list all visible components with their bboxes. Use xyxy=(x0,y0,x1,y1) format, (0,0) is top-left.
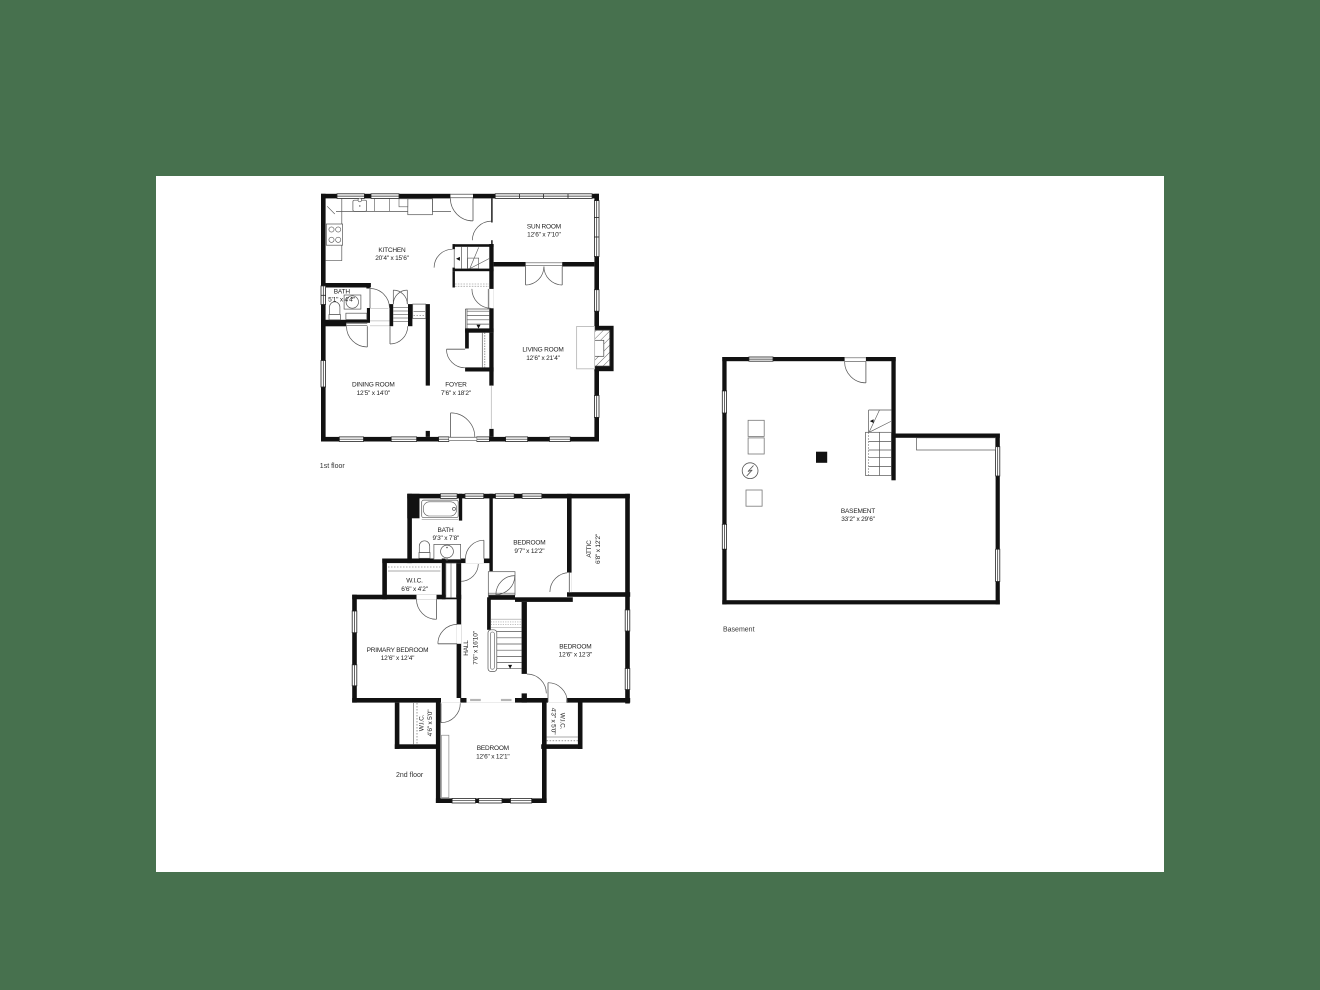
svg-text:12’6" x 12’4": 12’6" x 12’4" xyxy=(381,655,415,662)
svg-text:BEDROOM: BEDROOM xyxy=(513,540,545,547)
svg-text:6’8" x 12’2": 6’8" x 12’2" xyxy=(595,533,602,564)
svg-text:PRIMARY BEDROOM: PRIMARY BEDROOM xyxy=(367,647,429,654)
svg-text:HALL: HALL xyxy=(463,640,470,656)
svg-text:9’3" x 7’8": 9’3" x 7’8" xyxy=(432,535,460,542)
svg-text:12’6" x 12’1": 12’6" x 12’1" xyxy=(476,754,510,761)
svg-text:W.I.C.: W.I.C. xyxy=(559,713,566,730)
svg-text:DINING ROOM: DINING ROOM xyxy=(352,382,395,389)
svg-text:SUN ROOM: SUN ROOM xyxy=(527,224,561,231)
svg-text:KITCHEN: KITCHEN xyxy=(378,247,406,254)
svg-text:12’6" x 21’4": 12’6" x 21’4" xyxy=(526,355,560,362)
svg-text:Basement: Basement xyxy=(723,627,755,634)
svg-text:ATTIC: ATTIC xyxy=(586,540,593,558)
svg-text:FOYER: FOYER xyxy=(445,382,467,389)
svg-text:2nd floor: 2nd floor xyxy=(396,772,424,779)
svg-text:12’6" x 12’3": 12’6" x 12’3" xyxy=(559,652,593,659)
svg-text:7’6" x 16’10": 7’6" x 16’10" xyxy=(473,630,480,664)
svg-text:5’1" x 4’4": 5’1" x 4’4" xyxy=(328,297,356,304)
svg-text:W.I.C.: W.I.C. xyxy=(419,714,426,731)
svg-text:4’3" x 5’0": 4’3" x 5’0" xyxy=(550,708,557,736)
svg-text:1st floor: 1st floor xyxy=(320,463,346,470)
svg-text:BATH: BATH xyxy=(437,527,454,534)
svg-text:20’4" x 15’6": 20’4" x 15’6" xyxy=(375,255,409,262)
svg-text:12’5" x 14’0": 12’5" x 14’0" xyxy=(357,390,391,397)
svg-text:BASEMENT: BASEMENT xyxy=(841,508,875,515)
svg-text:6’6" x 4’2": 6’6" x 4’2" xyxy=(401,586,429,593)
svg-text:12’6" x 7’10": 12’6" x 7’10" xyxy=(527,231,561,238)
svg-text:9’7" x 12’2": 9’7" x 12’2" xyxy=(514,548,545,555)
svg-text:BEDROOM: BEDROOM xyxy=(477,745,509,752)
svg-text:BATH: BATH xyxy=(334,289,351,296)
svg-text:BEDROOM: BEDROOM xyxy=(559,643,591,650)
svg-text:4’6" x 5’0": 4’6" x 5’0" xyxy=(427,709,434,737)
svg-text:33’2" x 29’6": 33’2" x 29’6" xyxy=(841,516,875,523)
svg-text:LIVING ROOM: LIVING ROOM xyxy=(522,347,563,354)
svg-text:7’6" x 18’2": 7’6" x 18’2" xyxy=(441,390,472,397)
svg-text:W.I.C.: W.I.C. xyxy=(406,578,423,585)
